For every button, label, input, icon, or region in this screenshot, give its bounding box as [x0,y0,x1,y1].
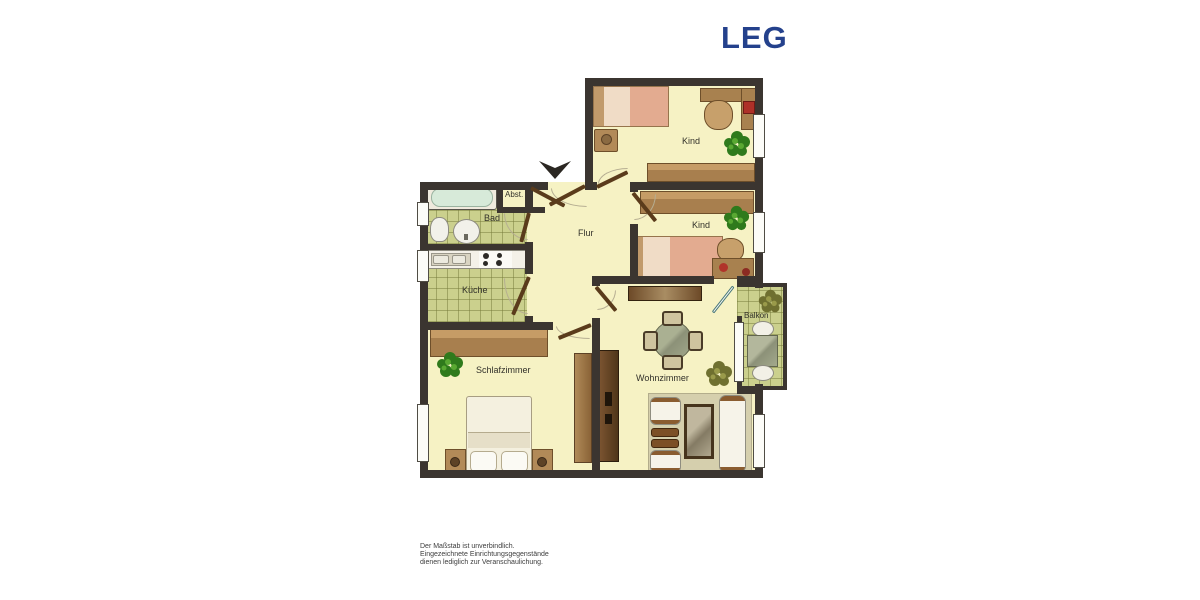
plant-icon [435,350,465,380]
room-label-kueche: Küche [462,285,488,295]
wall-segment [592,276,600,286]
room-label-flur: Flur [578,228,594,238]
window [417,250,429,282]
disclaimer-line: Der Maßstab ist unverbindlich. [420,543,549,551]
bathtub-basin-icon [431,188,493,207]
desk-accessory-icon [719,263,728,272]
wall-segment [630,224,638,284]
disclaimer-line: dienen lediglich zur Veranschaulichung. [420,559,549,567]
wall-segment [420,470,763,478]
dining-chair-icon [662,311,683,326]
leg-logo: LEG [721,20,788,56]
lamp-icon [450,457,460,467]
wall-segment [630,182,638,192]
wardrobe-handle-icon [605,392,612,406]
lamp-icon [601,134,612,145]
sideboard-icon [628,286,702,301]
window [753,114,765,158]
kitchen-sink-basin-icon [452,255,466,264]
dining-chair-icon [688,331,703,351]
room-label-kind-1: Kind [682,136,700,146]
window [417,202,429,226]
stove-burner-icon [496,260,502,266]
dining-chair-icon [662,355,683,370]
bed-icon [633,236,723,279]
stove-burner-icon [483,261,488,266]
plant-icon [722,129,752,159]
floorplan-page: LEG [0,0,1200,600]
pillow-icon [470,451,497,472]
stove-burner-icon [483,253,489,259]
side-table-icon [651,428,679,437]
wardrobe-handle-icon [605,414,612,424]
desk-accessory-icon [742,268,750,276]
plant-icon [704,359,734,389]
wall-segment [592,318,600,470]
balcony-window [734,322,744,382]
window [417,404,429,462]
wardrobe-icon [647,163,755,182]
room-label-wohnzimmer: Wohnzimmer [636,373,689,383]
plant-icon [722,204,751,233]
balcony-table-icon [747,335,778,367]
dining-chair-icon [643,331,658,351]
wall-segment [420,322,553,330]
wall-segment [592,276,714,284]
armchair-icon [650,397,681,425]
sink-tap-icon [464,234,468,240]
room-label-balkon: Balkon [744,311,768,321]
sink-icon [453,219,480,244]
wall-segment [585,78,593,190]
coffee-table-icon [684,404,714,459]
kitchen-sink-basin-icon [433,255,449,264]
window [753,212,765,253]
sofa-icon [719,395,746,473]
room-label-bad: Bad [484,213,500,223]
room-label-abstellraum: Abst. [505,190,523,200]
tall-wardrobe-icon [599,350,619,462]
wall-segment [630,182,763,190]
wall-segment [585,78,763,86]
balcony-wall-segment [737,386,787,390]
tall-wardrobe-icon [574,353,592,463]
side-table-icon [651,439,679,448]
bed-blanket-icon [468,432,530,448]
desk-accessory-icon [743,101,755,114]
stove-burner-icon [497,253,502,258]
window [753,414,765,468]
wall-segment [420,244,533,250]
disclaimer-line: Eingezeichnete Einrichtungsgegenstände [420,551,549,559]
north-arrow-icon [538,159,572,180]
balcony-chair-icon [752,365,774,381]
balcony-wall-segment [737,283,787,287]
bed-icon [593,86,669,127]
balcony-wall-segment [783,283,787,390]
pillow-icon [501,451,528,472]
disclaimer-text: Der Maßstab ist unverbindlich. Eingezeic… [420,543,549,567]
lamp-icon [537,457,547,467]
room-label-schlafzimmer: Schlafzimmer [476,365,531,375]
room-label-kind-2: Kind [692,220,710,230]
desk-chair-icon [704,100,733,130]
toilet-icon [430,217,449,242]
